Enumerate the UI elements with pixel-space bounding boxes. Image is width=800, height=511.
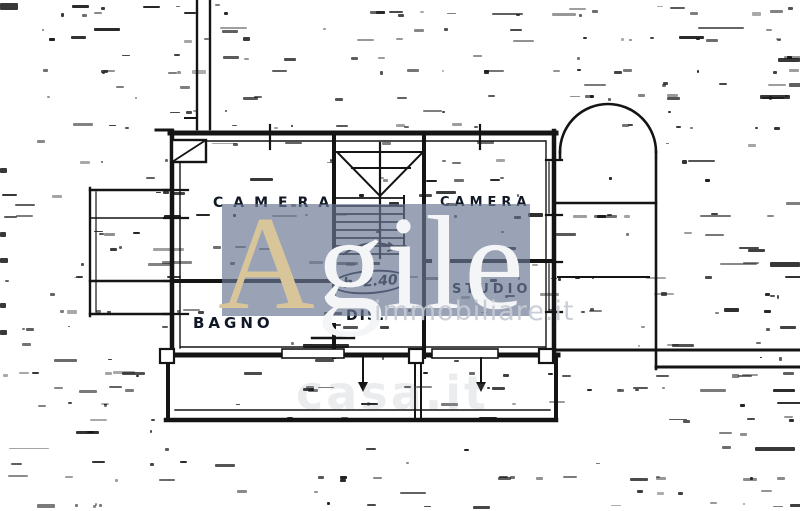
pillar-hatch — [172, 140, 206, 162]
watermark-tagline: immobiliare.it — [374, 296, 575, 327]
arched-terrace — [556, 104, 800, 369]
faint-portal-watermark: casa.it — [296, 366, 489, 420]
left-balcony — [90, 188, 172, 316]
scanned-floor-plan-page: CAMERA CAMERA BAGNO DIS. STUDIO h. 2.40 … — [0, 0, 800, 511]
watermark-letter-a: A — [218, 189, 317, 337]
upper-wall-stub — [156, 0, 210, 130]
